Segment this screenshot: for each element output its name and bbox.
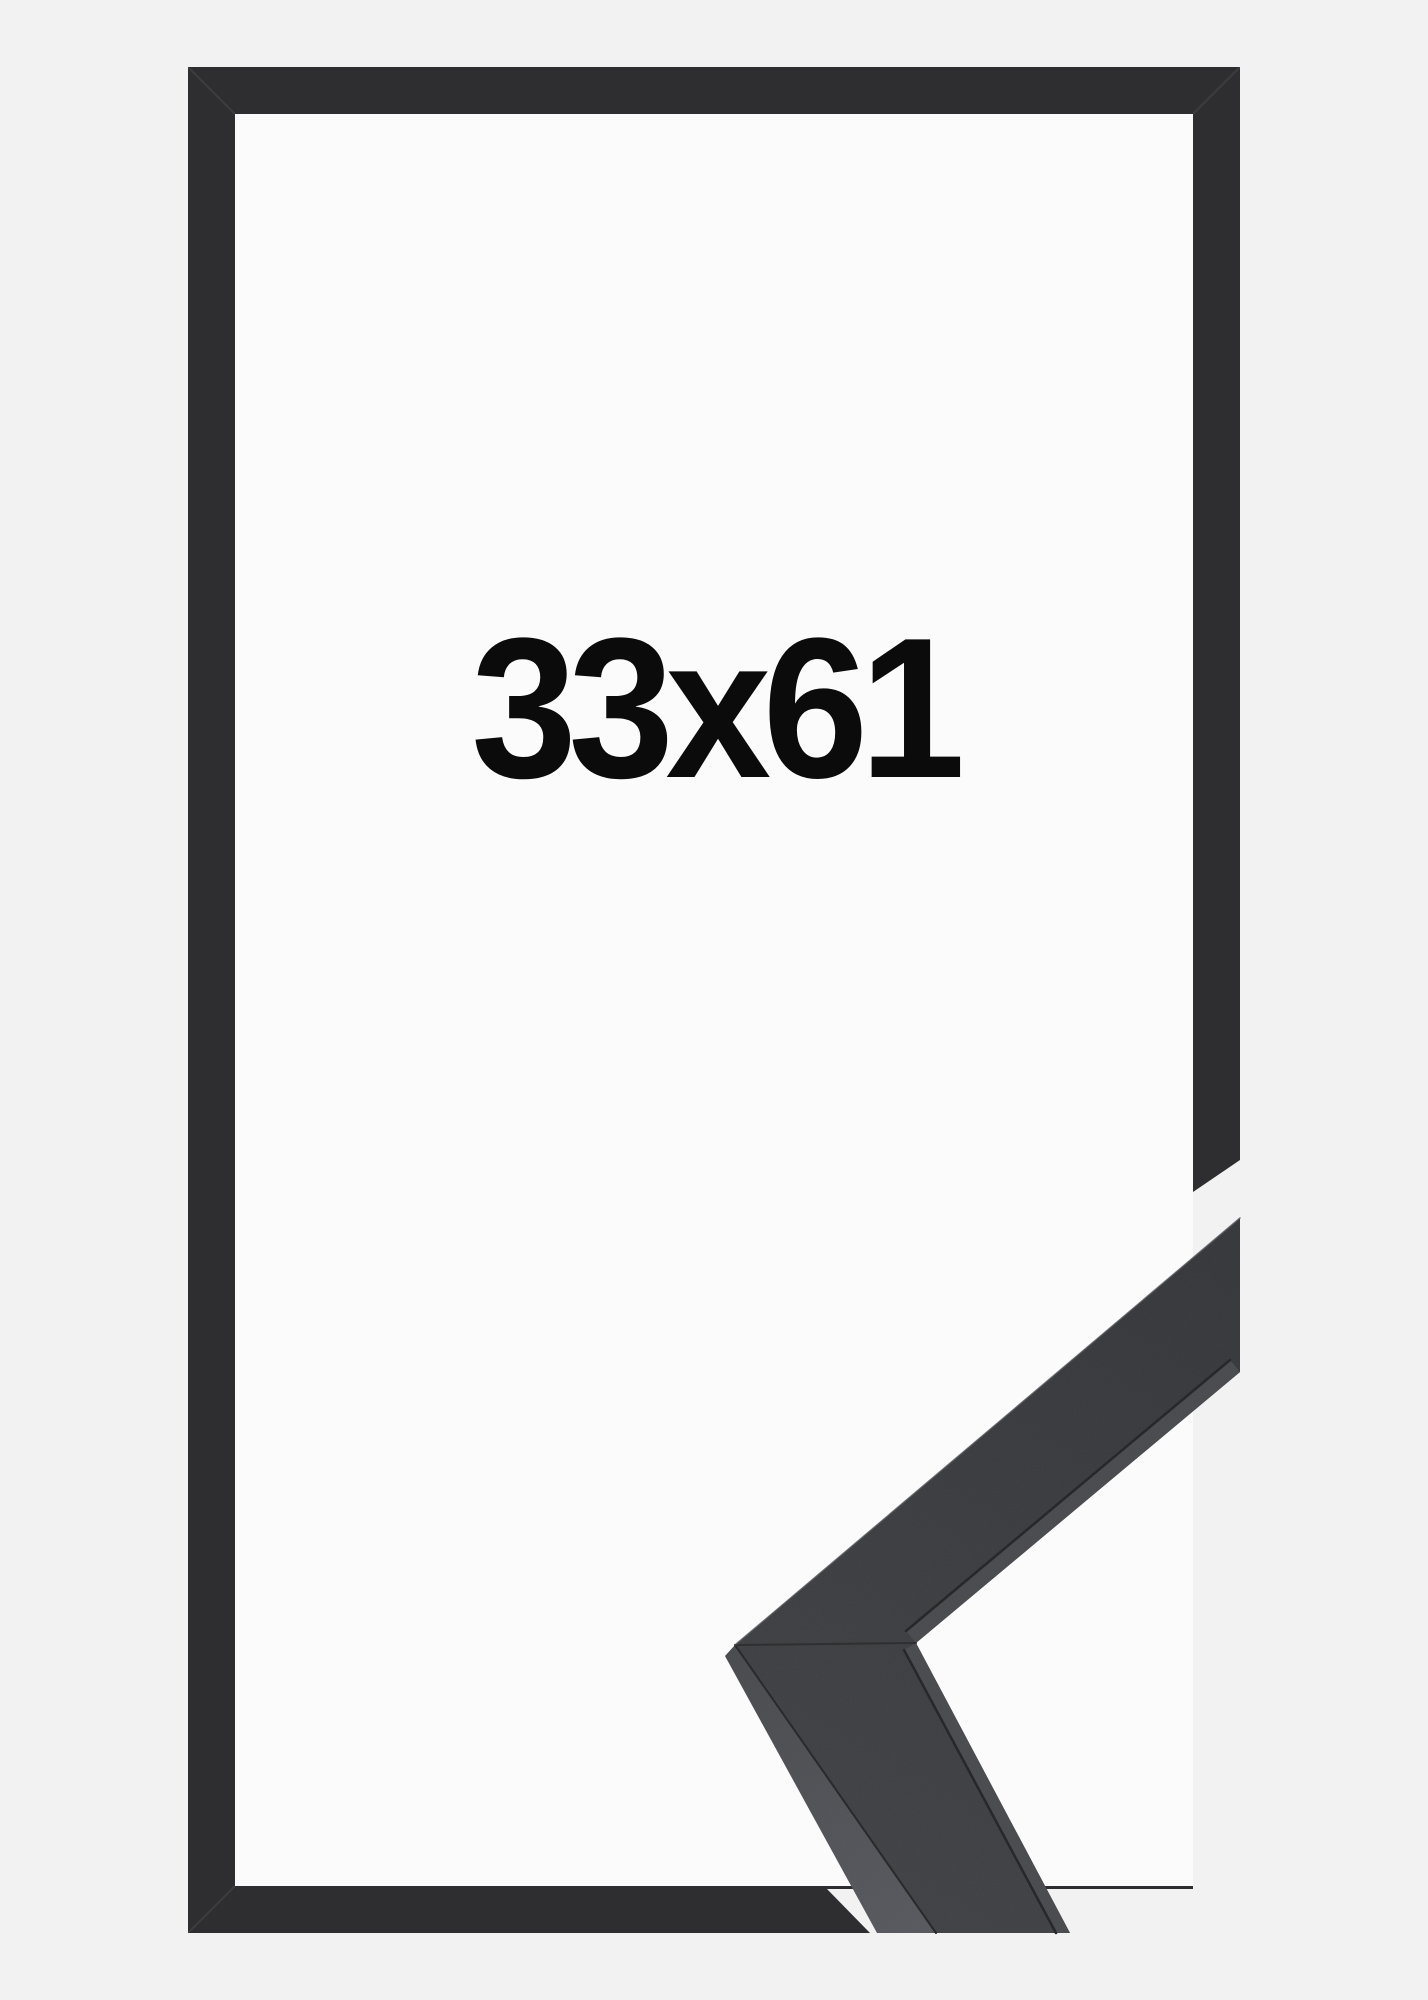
frame-inner-area bbox=[235, 114, 1193, 1886]
size-label: 33x61 bbox=[214, 609, 1213, 809]
frame-product-image: 33x61 bbox=[0, 0, 1428, 2000]
picture-frame-graphic bbox=[0, 0, 1428, 2000]
